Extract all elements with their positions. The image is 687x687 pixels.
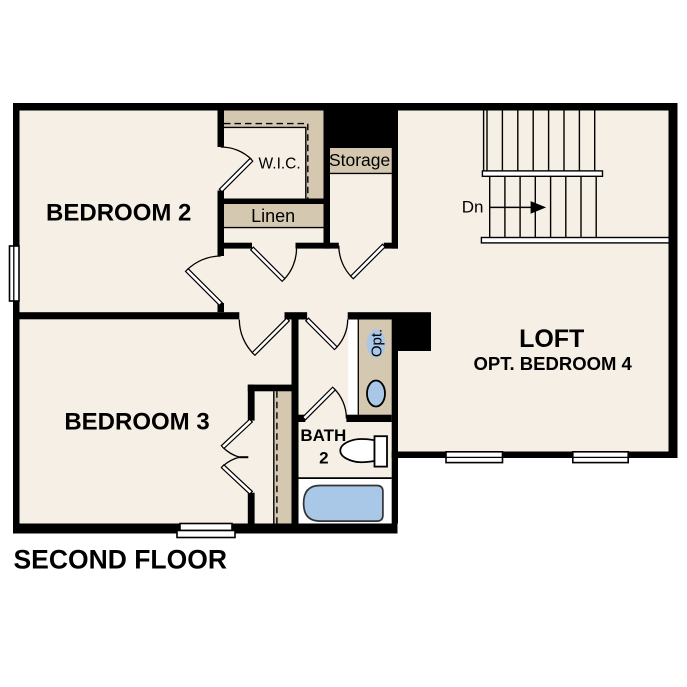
svg-text:OPT. BEDROOM 4: OPT. BEDROOM 4 — [474, 353, 633, 374]
svg-text:Opt.: Opt. — [368, 329, 385, 357]
svg-text:W.I.C.: W.I.C. — [258, 155, 300, 172]
svg-text:Storage: Storage — [329, 150, 390, 170]
svg-text:Dn: Dn — [462, 198, 484, 217]
svg-text:LOFT: LOFT — [519, 325, 584, 353]
svg-text:BEDROOM 2: BEDROOM 2 — [46, 199, 191, 226]
svg-text:BEDROOM 3: BEDROOM 3 — [64, 408, 209, 435]
svg-text:BATH: BATH — [300, 426, 346, 445]
svg-text:SECOND FLOOR: SECOND FLOOR — [14, 544, 227, 574]
svg-text:2: 2 — [319, 448, 328, 467]
svg-text:Linen: Linen — [251, 206, 295, 226]
